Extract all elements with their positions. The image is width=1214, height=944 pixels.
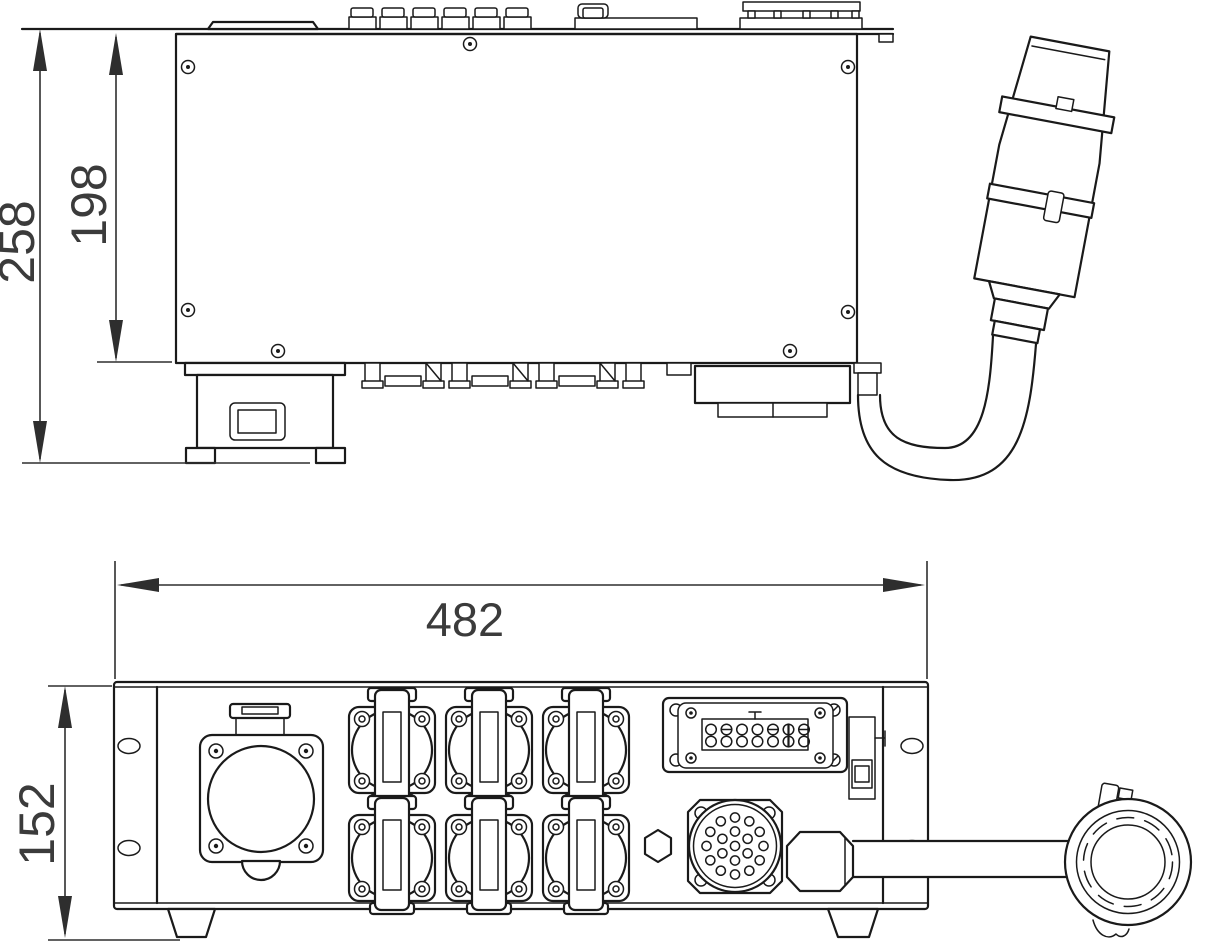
cee-plug-rear <box>1065 783 1191 937</box>
multipin-round-connector <box>688 800 782 893</box>
chassis-top-view <box>22 29 893 363</box>
front-view: 482 152 <box>9 561 1191 940</box>
multipin-housing-side <box>695 366 850 417</box>
technical-drawing: 258 198 <box>0 0 1214 944</box>
dim-label-panel-height: 152 <box>9 782 65 865</box>
edge-plate-with-button <box>575 4 697 29</box>
dimension-body-depth: 198 <box>61 33 172 362</box>
supply-cable-front <box>853 841 1069 877</box>
dim-label-overall-depth: 258 <box>0 200 45 283</box>
drawing-canvas: 258 198 <box>0 0 1214 944</box>
edge-connector-block <box>740 2 862 29</box>
top-view: 258 198 <box>0 2 1126 480</box>
cee-plug-side <box>959 34 1126 350</box>
schuko-socket-grid <box>349 688 629 914</box>
cee-inlet-side <box>185 363 345 463</box>
dimension-overall-width: 482 <box>115 561 927 679</box>
rubber-foot <box>828 909 878 937</box>
dim-label-overall-width: 482 <box>426 593 504 646</box>
multipin-rect-connector <box>663 698 847 772</box>
hex-bolt <box>645 830 671 862</box>
cable-gland-front <box>787 832 853 891</box>
breaker-row-edge <box>208 8 531 29</box>
socket-covers-side <box>362 363 691 388</box>
cable-gland-side <box>854 363 881 395</box>
dim-label-body-depth: 198 <box>61 163 117 246</box>
supply-cable-side <box>858 336 1036 480</box>
rubber-foot <box>168 909 215 937</box>
